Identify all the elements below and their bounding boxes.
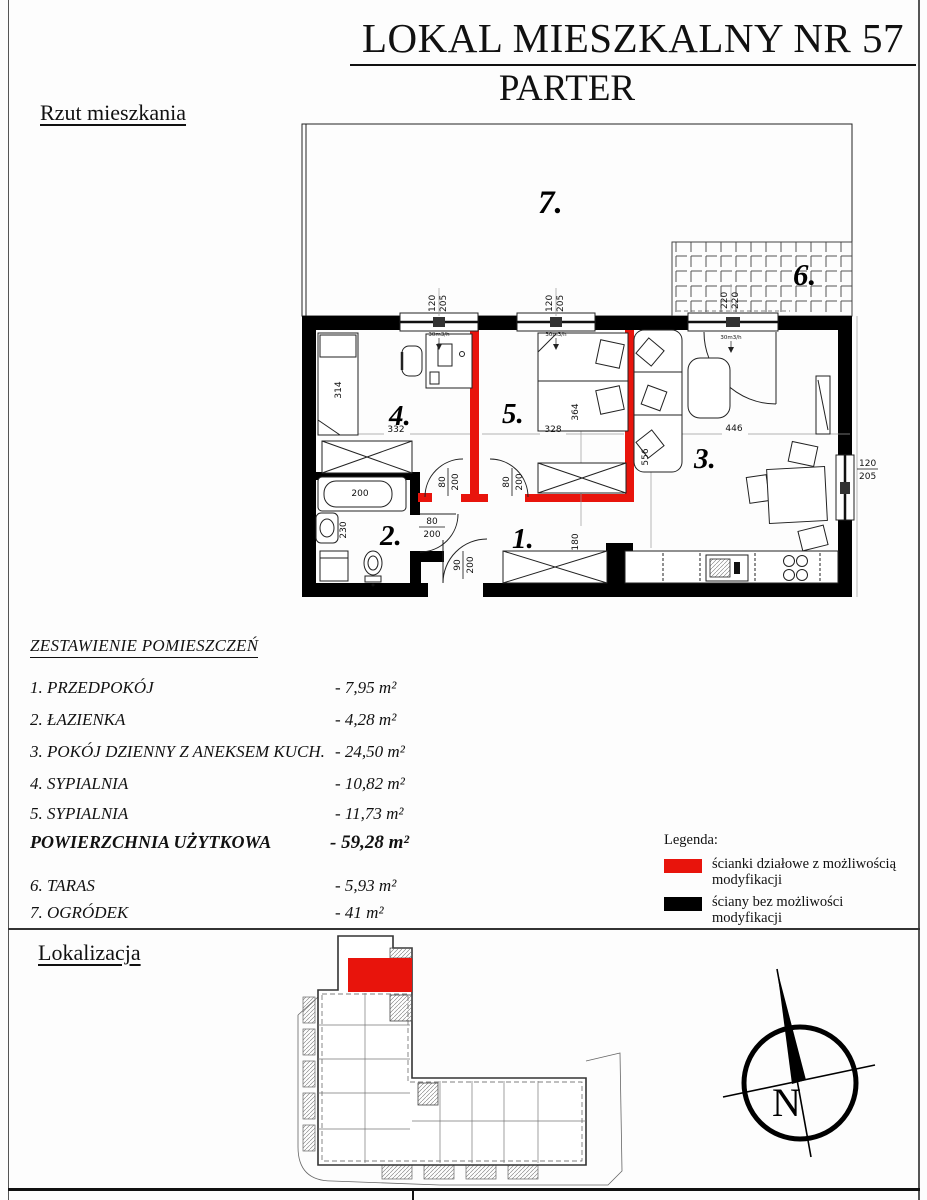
dim-door-room4: 80 200 — [438, 468, 461, 496]
svg-text:30m3/h: 30m3/h — [545, 332, 567, 338]
desk-room4 — [426, 334, 472, 388]
floor-plan-drawing: 1. 2. 3. 4. 5. 6. 7. 120 205 120 205 220… — [290, 118, 880, 610]
svg-text:80: 80 — [502, 476, 512, 488]
kitchen-sink-icon — [706, 555, 748, 581]
legend-item: ścianki działowe z możliwością modyfikac… — [664, 857, 916, 889]
room-label-3: 3. — [693, 443, 716, 475]
north-compass: N — [715, 953, 890, 1173]
table-row: 1. PRZEDPOKÓJ- 7,95 m² — [30, 678, 470, 698]
kitchen-counter — [625, 551, 838, 583]
wardrobe-room5 — [538, 463, 626, 493]
red-wall-swatch — [664, 859, 702, 873]
page-border-left — [8, 0, 9, 1200]
table-row: 6. TARAS- 5,93 m² — [30, 876, 470, 896]
svg-text:200: 200 — [451, 473, 461, 490]
compass-north-label: N — [772, 1080, 801, 1125]
toilet — [364, 551, 382, 587]
table-row: 3. POKÓJ DZIENNY Z ANEKSEM KUCH.- 24,50 … — [30, 742, 470, 762]
svg-text:328: 328 — [544, 425, 561, 435]
black-wall-swatch — [664, 897, 702, 911]
dim-window-room5: 120 205 — [545, 295, 566, 312]
svg-text:80: 80 — [438, 476, 448, 488]
page-subtitle: PARTER — [284, 67, 850, 110]
terrace — [672, 242, 852, 316]
room-label-5: 5. — [502, 398, 524, 430]
dim-door-room5: 80 200 — [502, 468, 525, 496]
plan-section-heading: Rzut mieszkania — [40, 100, 186, 126]
svg-text:205: 205 — [439, 295, 449, 312]
stair-core — [390, 995, 412, 1021]
footer-rule — [8, 1188, 920, 1191]
floorplan-sheet: { "title": {"line1": "LOKAL MIESZKALNY N… — [0, 0, 927, 1200]
svg-text:205: 205 — [556, 295, 566, 312]
svg-text:180: 180 — [571, 533, 581, 550]
svg-text:200: 200 — [351, 489, 368, 499]
table-row: 7. OGRÓDEK- 41 m² — [30, 903, 470, 923]
room-schedule-heading: ZESTAWIENIE POMIESZCZEŃ — [30, 636, 258, 658]
washing-machine — [320, 551, 348, 581]
balconies-left — [303, 997, 315, 1151]
location-section-heading: Lokalizacja — [38, 940, 141, 966]
svg-text:200: 200 — [423, 530, 440, 540]
chair-room4 — [402, 346, 422, 376]
unit-57-highlight — [348, 958, 412, 992]
legend-heading: Legenda: — [664, 832, 916, 849]
dim-terrace-door: 220 220 — [720, 292, 741, 309]
svg-text:220: 220 — [731, 292, 741, 309]
room-label-7: 7. — [538, 185, 563, 221]
svg-text:220: 220 — [720, 292, 730, 309]
window-room3 — [836, 455, 854, 520]
room-label-6: 6. — [793, 257, 816, 292]
page-title: LOKAL MIESZKALNY NR 57 — [350, 14, 916, 66]
balconies-bottom — [382, 1165, 538, 1179]
table-row: 4. SYPIALNIA- 10,82 m² — [30, 774, 470, 794]
site-plan — [290, 933, 625, 1188]
svg-text:90: 90 — [453, 559, 463, 571]
wardrobe-room4 — [322, 441, 412, 473]
total-row: POWIERZCHNIA UŻYTKOWA- 59,28 m² — [30, 832, 470, 853]
svg-text:30m3/h: 30m3/h — [428, 332, 450, 338]
svg-text:80: 80 — [426, 517, 438, 527]
table-row: 5. SYPIALNIA- 11,73 m² — [30, 804, 470, 824]
svg-text:314: 314 — [334, 381, 344, 398]
bath-sink — [316, 513, 338, 543]
room-label-2: 2. — [379, 520, 402, 552]
svg-text:446: 446 — [725, 424, 742, 434]
legend-item: ściany bez możliwości modyfikacji — [664, 895, 916, 927]
coffee-table — [688, 358, 730, 418]
footer-cell-divider — [412, 1188, 414, 1200]
svg-text:200: 200 — [466, 556, 476, 573]
svg-text:205: 205 — [859, 472, 876, 482]
svg-text:120: 120 — [545, 295, 555, 312]
svg-text:120: 120 — [859, 459, 876, 469]
wardrobe-hall — [503, 551, 607, 583]
stair-core — [418, 1083, 438, 1105]
bed-room5 — [538, 333, 628, 431]
page-border-right — [918, 0, 920, 1200]
room-label-1: 1. — [512, 523, 534, 555]
title-block: LOKAL MIESZKALNY NR 57 PARTER — [350, 14, 916, 110]
dim-window-room4: 120 205 — [428, 295, 449, 312]
svg-text:120: 120 — [428, 295, 438, 312]
svg-text:200: 200 — [515, 473, 525, 490]
svg-text:556: 556 — [641, 448, 651, 465]
tv-cabinet — [816, 376, 830, 434]
dim-entry-door: 90 200 — [453, 551, 476, 579]
svg-text:364: 364 — [571, 403, 581, 420]
dim-door-bath: 80 200 — [419, 517, 445, 540]
dim-window-room3: 120 205 — [857, 459, 878, 482]
svg-text:230: 230 — [339, 521, 349, 538]
terrace-hatch — [390, 948, 412, 958]
svg-text:30m3/h: 30m3/h — [720, 335, 742, 341]
table-row: 2. ŁAZIENKA- 4,28 m² — [30, 710, 470, 730]
legend: Legenda: ścianki działowe z możliwością … — [664, 832, 916, 933]
svg-text:332: 332 — [387, 425, 404, 435]
dining-table — [746, 442, 828, 551]
